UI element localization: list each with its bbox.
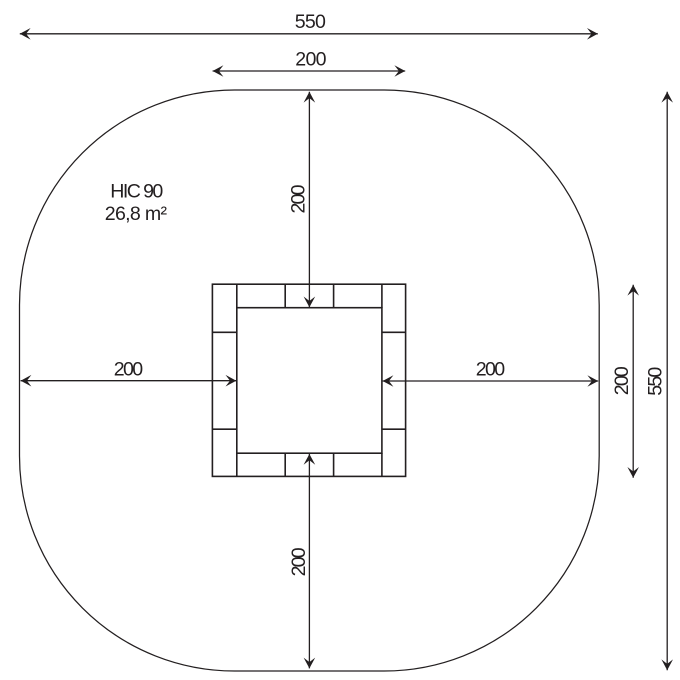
svg-text:550: 550 xyxy=(295,11,326,33)
svg-text:200: 200 xyxy=(611,366,633,395)
svg-text:200: 200 xyxy=(295,49,326,71)
svg-text:HIC 90: HIC 90 xyxy=(110,181,163,203)
svg-text:200: 200 xyxy=(287,184,309,213)
svg-text:550: 550 xyxy=(645,367,667,396)
svg-text:200: 200 xyxy=(476,359,505,381)
svg-text:200: 200 xyxy=(288,547,310,576)
svg-text:200: 200 xyxy=(114,359,143,381)
svg-text:26,8 m²: 26,8 m² xyxy=(105,203,168,225)
